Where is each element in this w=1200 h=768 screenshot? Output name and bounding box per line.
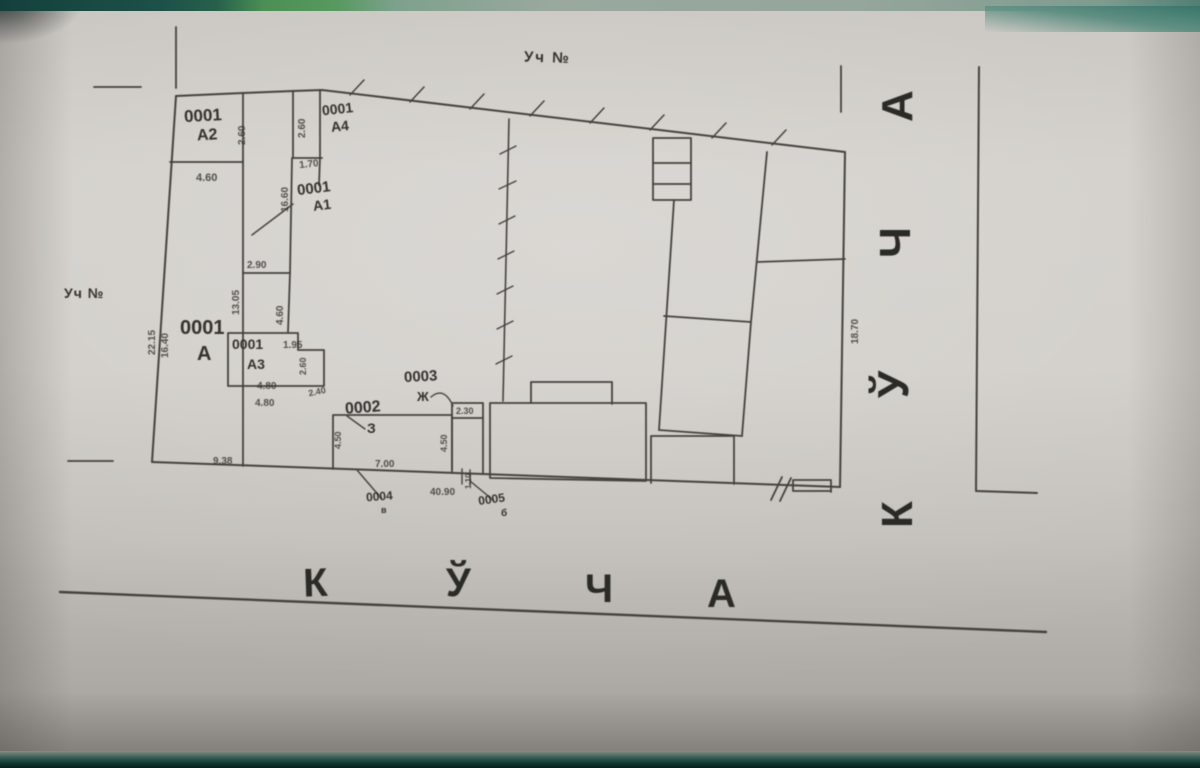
boundary-hatch-ticks [350,80,786,145]
dim-0002-height: 4.50 [333,431,343,449]
dim-a2-width: 4.60 [196,172,217,184]
label-a2-code: 0001 [184,105,223,126]
label-0004-code: 0004 [366,488,394,504]
fence-cross-ticks [496,146,516,364]
dim-left-inner: 16.40 [160,333,171,358]
dim-a3-notch: 1.95 [283,340,303,351]
label-0002-lit: З [367,420,376,436]
corner-mark-top-left [94,27,176,88]
label-a3-code: 0001 [232,336,263,352]
street-bracket-right [976,67,1037,493]
label-0002-code: 0002 [345,398,382,417]
leader-0003 [431,393,453,406]
street-letter-bottom-4: А [707,572,736,616]
label-a4-code: 0001 [321,99,354,118]
label-uch-top: Уч № [524,48,572,67]
dim-right-length: 18.70 [850,319,861,344]
street-letter-right-1: К [873,501,922,528]
building-main-rect [490,403,646,481]
label-a-lit: А [197,343,211,365]
right-top-small-rect [653,138,691,200]
plan-labels: Уч № Уч № К Ў Ч А К Ў Ч А 0001 А2 2.60 4… [64,48,922,616]
right-partition-connector [659,316,751,436]
dim-0003-height: 4.50 [439,434,449,452]
right-room-divider [757,259,845,262]
dim-a4-height: 2.60 [297,118,308,138]
street-letter-bottom-3: Ч [585,567,613,611]
street-letter-bottom-1: К [302,561,329,606]
dim-gate-width: 1.10 [464,473,473,489]
dim-a3-width-top: 4.80 [257,381,277,392]
label-a1-lit: А1 [312,196,332,214]
label-a3-lit: А3 [247,356,265,372]
dim-yard-width: 9.38 [213,456,233,467]
dim-a1-height: 16.60 [280,187,291,212]
parcel-boundary-left [152,96,176,462]
right-partition-1 [659,200,674,430]
parcel-boundary-right [840,152,845,487]
label-0003-lit: Ж [416,389,429,404]
label-uch-left: Уч № [64,285,104,301]
dim-corridor-width: 2.90 [247,260,267,271]
dim-a3-step: 2.40 [307,385,326,398]
dim-a3-width: 4.80 [255,398,275,409]
dim-a3-side: 2.60 [298,357,308,375]
right-partition-2 [742,152,767,436]
label-0005-code: 0005 [477,490,506,508]
gate-ticks-right [771,477,791,501]
street-letter-right-3: Ч [871,227,920,258]
building-right-small-rect [651,436,734,484]
street-letter-right-4: А [873,90,922,122]
label-a2-lit: А2 [197,126,218,144]
street-letter-bottom-2: Ў [445,558,472,605]
label-a4-lit: А4 [330,117,350,135]
label-0004-lit: в [381,505,387,515]
building-bump-rect [531,382,612,404]
label-0003-code: 0003 [404,367,438,386]
street-line-bottom [60,592,1046,632]
dim-a2-height: 2.60 [237,125,248,145]
dim-mid-height: 4.60 [275,305,286,325]
dim-0002-width: 7.00 [375,459,395,470]
label-a-code: 0001 [180,317,225,339]
leader-0002 [347,416,365,429]
dim-frontage: 40.90 [430,487,455,498]
parcel-boundary-bottom [152,462,840,487]
street-letter-right-2: Ў [867,370,918,399]
dim-0003-width: 2.30 [456,406,474,416]
dim-a4-width: 1.70 [299,158,320,171]
plan-drawing: Уч № Уч № К Ў Ч А К Ў Ч А 0001 А2 2.60 4… [0,0,1200,768]
parcel-boundary-top [176,90,845,152]
scanned-cadastral-plan: Уч № Уч № К Ў Ч А К Ў Ч А 0001 А2 2.60 4… [0,0,1200,768]
dim-left-outer: 22.15 [147,330,158,355]
label-0005-lit: б [501,507,507,519]
dim-corridor-height: 13.05 [231,290,242,315]
